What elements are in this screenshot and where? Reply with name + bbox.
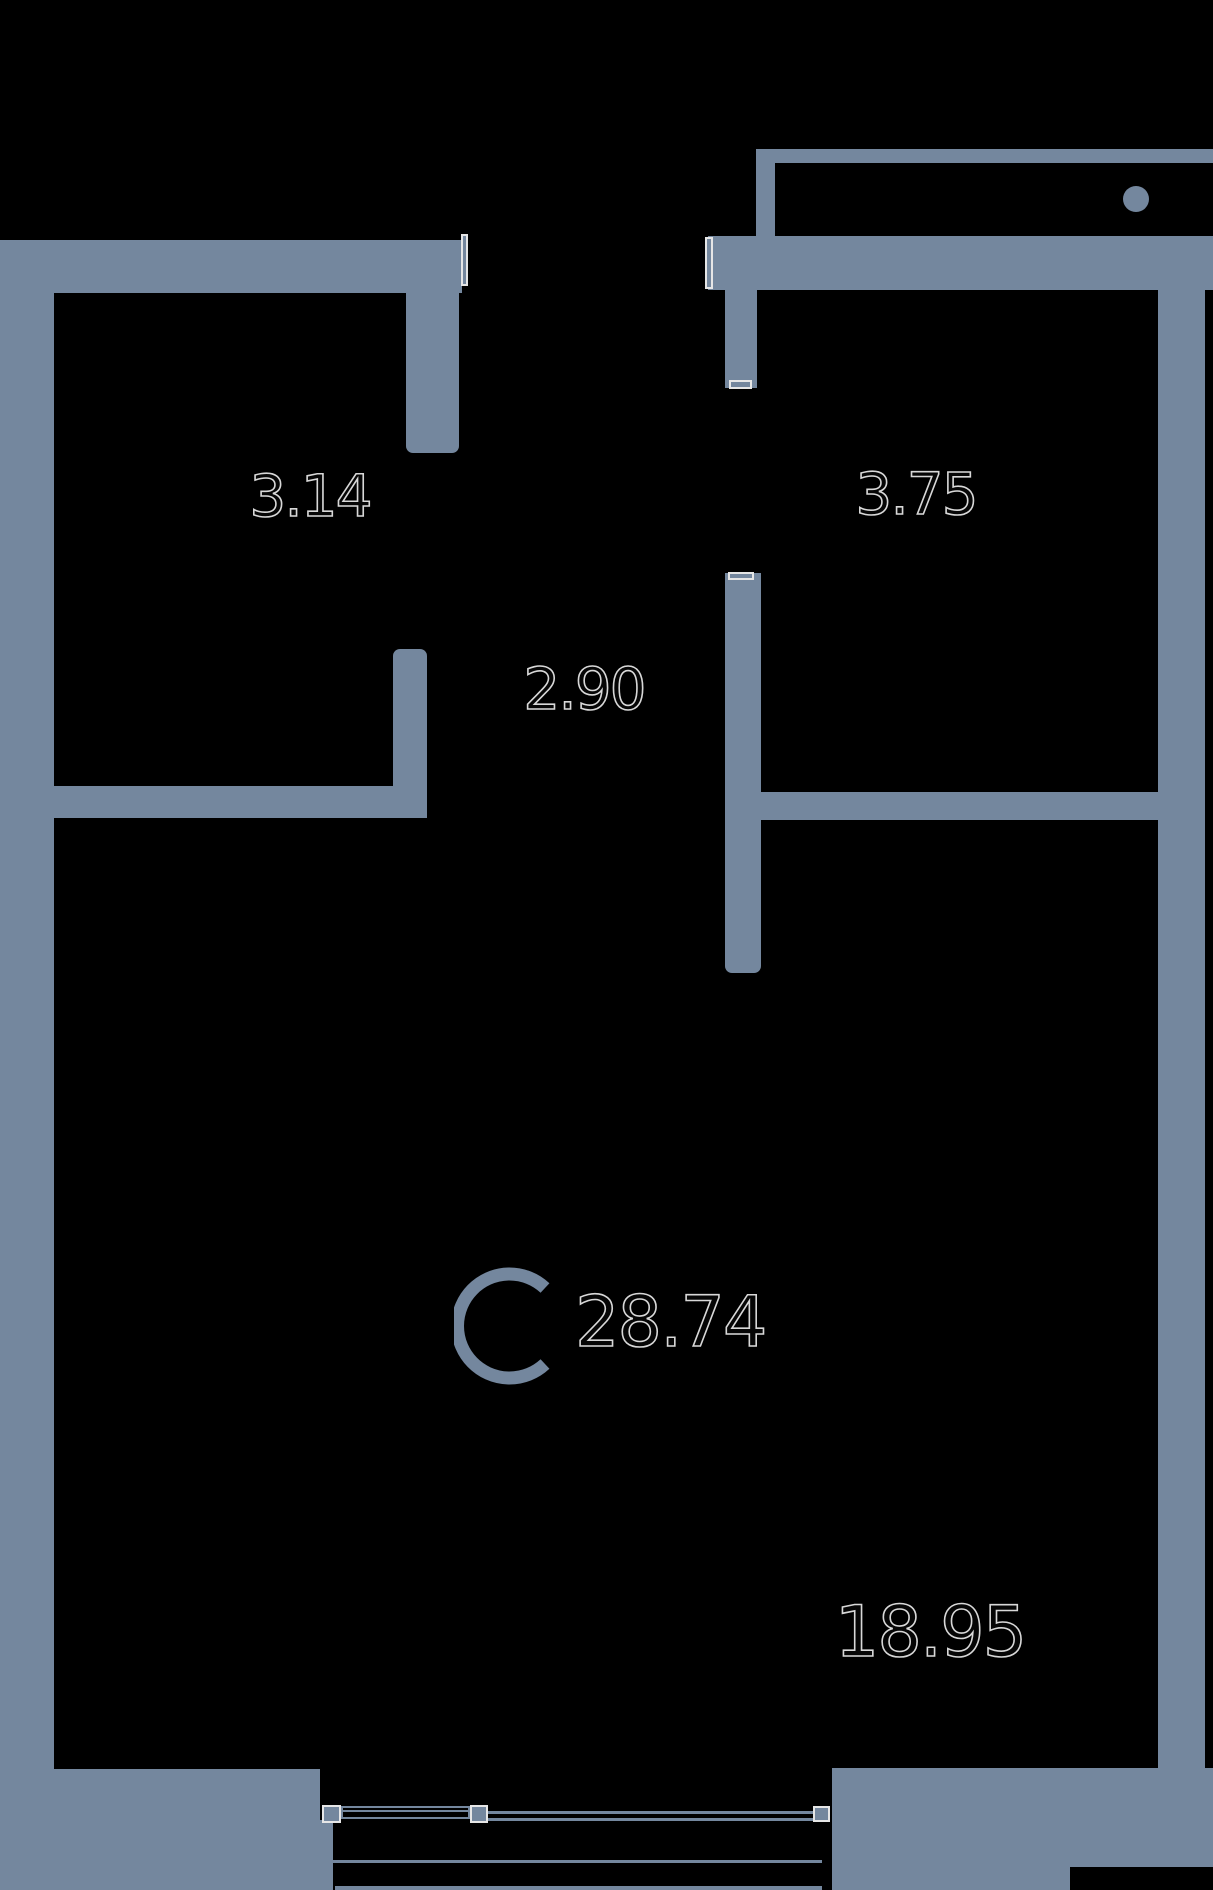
floor-plan: 3.14 3.75 2.90 18.95 28.74 [0,0,1213,1890]
window-cap-top-right-opening [705,237,713,289]
partition-left-lower-vertical [393,649,427,786]
hallway-dimension-label: 2.90 [523,655,644,723]
top-wall-left [0,240,462,293]
bottom-window-frame-mullion [343,1810,468,1812]
balcony-left-wall [756,149,775,236]
unit-letter-c [454,1260,566,1392]
bottom-window-glass-line-lower [488,1818,813,1821]
window-cap-top-left-opening [461,234,468,286]
partition-horizontal-right [761,792,1158,820]
top-wall-right [708,236,1213,290]
partition-top-left-vertical [406,293,459,453]
partition-center-upper-vertical [725,290,757,388]
bottom-window-cap-middle [470,1805,488,1823]
bottom-wall-left-block [0,1769,320,1890]
bottom-wall-right-block [832,1768,1070,1890]
partition-center-lower-vertical [725,573,761,973]
left-wall [0,240,54,1770]
bottom-window-cap-left [322,1805,341,1823]
bottom-window-cap-right [813,1806,830,1822]
bottom-wall-left-step [320,1820,333,1890]
room-top-left-dimension-label: 3.14 [249,462,370,530]
balcony-column-dot [1123,186,1149,212]
door-cap-center-lower [728,572,754,580]
bottom-balcony-rail-line [333,1860,822,1863]
bottom-window-frame [341,1806,470,1819]
partition-horizontal-left [54,786,427,818]
bottom-wall-right-corner [1070,1768,1213,1867]
room-top-right-dimension-label: 3.75 [855,460,976,528]
bottom-window-glass-line-upper [488,1811,813,1814]
living-room-area-label: 18.95 [835,1591,1025,1673]
bottom-balcony-edge-line [335,1886,822,1890]
right-wall [1158,290,1205,1768]
total-area-label: 28.74 [575,1281,765,1363]
balcony-top-wall [756,149,1213,163]
door-cap-center-upper [729,380,752,389]
